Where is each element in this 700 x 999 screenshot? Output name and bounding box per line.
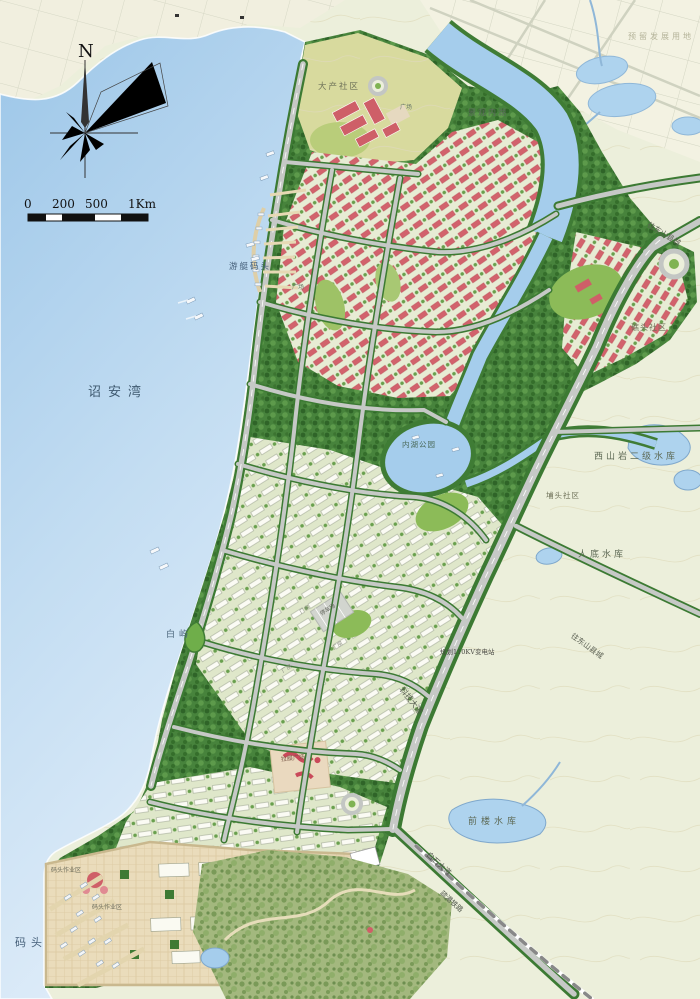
scale-tick-1km: 1Km: [128, 197, 157, 211]
scale-tick-200: 200: [52, 197, 75, 211]
master-plan-map: N 0 200 500 1Km 预留发展用地 大产社区 景观内湖 广场 广场 往…: [0, 0, 700, 999]
compass-north-label: N: [78, 41, 94, 62]
map-canvas: N 0 200 500 1Km: [0, 0, 700, 999]
scale-tick-500: 500: [85, 197, 108, 211]
scale-tick-0: 0: [24, 197, 32, 211]
